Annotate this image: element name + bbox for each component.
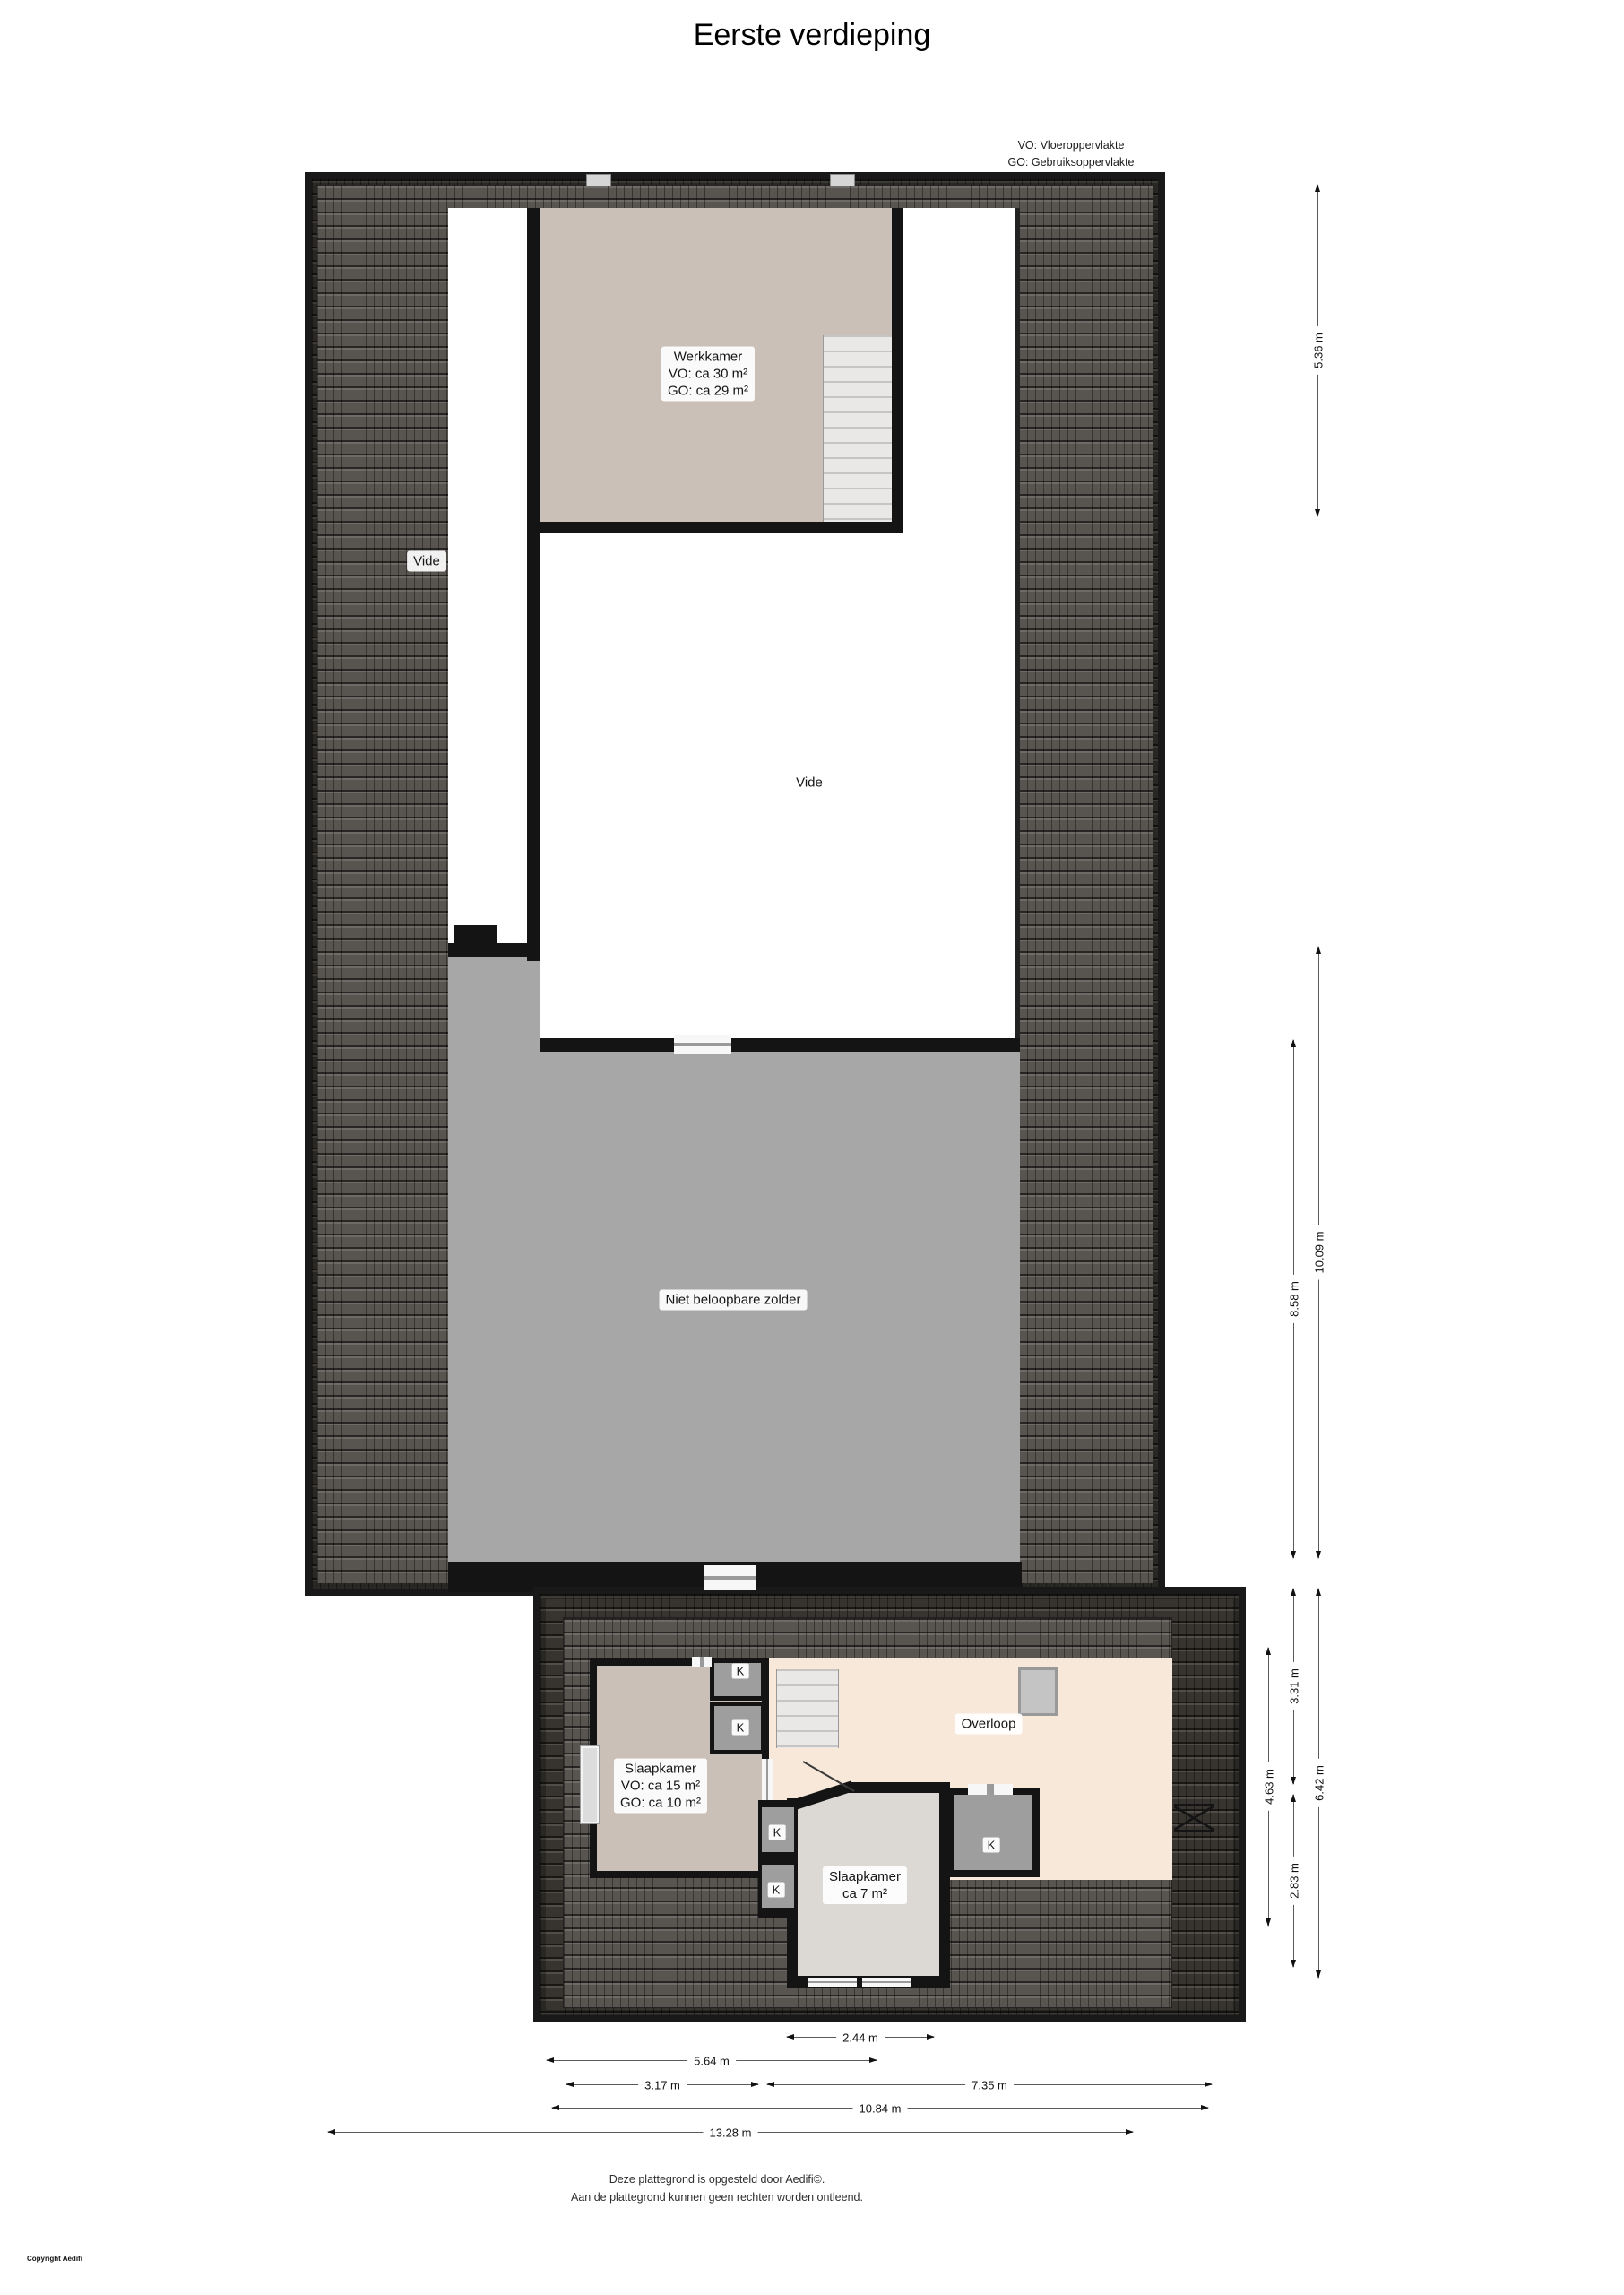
dim-label: 8.58 m: [1288, 1275, 1301, 1323]
dim-horizontal-735: 7.35 m: [767, 2084, 1212, 2085]
slaapkamer-2-name: Slaapkamer: [829, 1868, 901, 1885]
chimney-mark: [454, 925, 497, 947]
dim-label: 10.84 m: [853, 2102, 908, 2116]
werkkamer-name: Werkkamer: [668, 349, 748, 366]
label-slaapkamer-2: Slaapkamer ca 7 m²: [823, 1866, 907, 1904]
door-vide-bottom: [674, 1035, 731, 1054]
dim-vertical-1009: 10.09 m: [1318, 947, 1319, 1558]
floorplan-page: Eerste verdieping VO: Vloeroppervlakte G…: [0, 0, 1624, 2295]
dim-horizontal-1328: 13.28 m: [328, 2132, 1133, 2133]
window-k3-top: [968, 1784, 1013, 1795]
dim-label: 5.64 m: [687, 2055, 736, 2068]
dim-vertical-642: 6.42 m: [1318, 1589, 1319, 1978]
dim-vertical-536: 5.36 m: [1317, 185, 1318, 516]
window-sk2-bottom-2: [862, 1978, 911, 1987]
wall-vide-divider: [527, 208, 540, 961]
staircase-werkkamer: [823, 335, 894, 524]
dim-label: 7.35 m: [965, 2079, 1014, 2092]
label-closet-k3: K: [983, 1838, 1000, 1853]
door-slaapkamer-1-top: [692, 1657, 712, 1667]
dim-label: 10.09 m: [1313, 1225, 1326, 1280]
dim-vertical-331: 3.31 m: [1293, 1589, 1294, 1784]
wall-vide-bottom: [540, 1038, 1020, 1052]
label-closet-k2: K: [732, 1720, 749, 1736]
dim-label: 2.44 m: [836, 2031, 885, 2045]
window-sk2-bottom-1: [808, 1978, 857, 1987]
dim-label: 3.17 m: [638, 2079, 687, 2092]
copyright-note: Copyright Aedifi: [27, 2255, 82, 2263]
slaapkamer-1-name: Slaapkamer: [620, 1761, 701, 1778]
page-title: Eerste verdieping: [0, 18, 1624, 53]
dim-label: 5.36 m: [1312, 326, 1326, 375]
staircase-overloop: [776, 1669, 839, 1748]
werkkamer-vo: VO: ca 30 m²: [668, 366, 748, 383]
slaapkamer-1-go: GO: ca 10 m²: [620, 1795, 701, 1812]
footer-line-1: Deze plattegrond is opgesteld door Aedif…: [448, 2170, 986, 2188]
wall-sk2-top: [848, 1782, 950, 1793]
door-slaapkamer-1-right: [762, 1759, 773, 1800]
door-zolder-south: [704, 1565, 756, 1590]
window-slaapkamer-1: [581, 1746, 599, 1823]
dim-label: 3.31 m: [1288, 1662, 1301, 1710]
label-overloop: Overloop: [955, 1714, 1023, 1735]
label-slaapkamer-1: Slaapkamer VO: ca 15 m² GO: ca 10 m²: [614, 1759, 707, 1814]
wall-werkkamer-bottom: [540, 522, 903, 533]
label-closet-k5: K: [768, 1883, 785, 1898]
dim-vertical-463: 4.63 m: [1268, 1648, 1269, 1926]
closet-k3: [946, 1788, 1040, 1877]
label-vide-left: Vide: [407, 551, 446, 572]
footer-disclaimer: Deze plattegrond is opgesteld door Aedif…: [448, 2170, 986, 2206]
dim-label: 13.28 m: [704, 2126, 758, 2140]
footer-line-2: Aan de plattegrond kunnen geen rechten w…: [448, 2188, 986, 2206]
slaapkamer-1-vo: VO: ca 15 m²: [620, 1778, 701, 1795]
label-zolder: Niet beloopbare zolder: [660, 1290, 808, 1311]
zolder-area-main: [540, 1051, 1020, 1585]
dim-label: 6.42 m: [1313, 1759, 1326, 1807]
label-werkkamer: Werkkamer VO: ca 30 m² GO: ca 29 m²: [661, 347, 755, 402]
legend: VO: Vloeroppervlakte GO: Gebruiksoppervl…: [968, 137, 1174, 171]
dim-horizontal-317: 3.17 m: [566, 2084, 758, 2085]
werkkamer-go: GO: ca 29 m²: [668, 383, 748, 400]
dim-label: 2.83 m: [1288, 1857, 1301, 1905]
legend-line-go: GO: Gebruiksoppervlakte: [968, 154, 1174, 171]
dim-horizontal-244: 2.44 m: [787, 2037, 934, 2038]
dim-label: 4.63 m: [1263, 1762, 1276, 1811]
zolder-area-left: [448, 956, 540, 1585]
wall-werkkamer-right: [892, 208, 903, 533]
label-closet-k1: K: [732, 1664, 749, 1679]
legend-line-vo: VO: Vloeroppervlakte: [968, 137, 1174, 154]
label-closet-k4: K: [769, 1825, 786, 1840]
wall-vide-right: [1015, 208, 1020, 1051]
dim-vertical-858: 8.58 m: [1293, 1040, 1294, 1558]
wall-sk2-right: [939, 1782, 950, 1987]
roof-hatch-x: [1174, 1804, 1214, 1832]
slaapkamer-2-area: ca 7 m²: [829, 1885, 901, 1902]
roof-notch-right: [830, 174, 855, 186]
roof-window: [1018, 1667, 1058, 1716]
vide-left-strip: [448, 208, 527, 948]
dim-horizontal-1084: 10.84 m: [552, 2108, 1208, 2109]
label-vide-center: Vide: [790, 773, 829, 793]
roof-notch-left: [586, 174, 611, 186]
dim-horizontal-564: 5.64 m: [547, 2060, 877, 2061]
dim-vertical-283: 2.83 m: [1293, 1795, 1294, 1967]
